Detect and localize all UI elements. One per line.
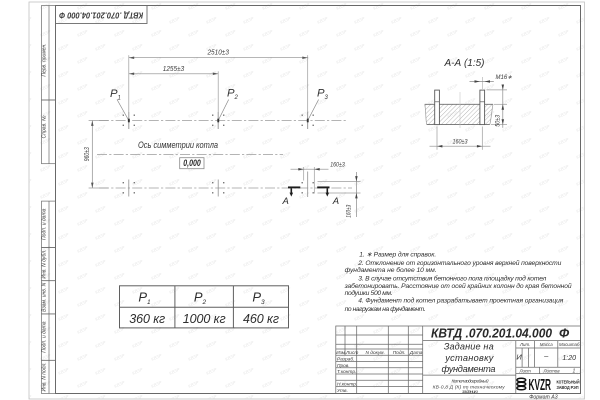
svg-text:Подп. и дата: Подп. и дата (41, 321, 47, 353)
svg-text:КВТД .070.201.04.000 Ф: КВТД .070.201.04.000 Ф (59, 10, 143, 20)
svg-text:N докум.: N докум. (366, 350, 385, 356)
svg-text:Н.контр.: Н.контр. (337, 382, 357, 388)
svg-text:Разраб.: Разраб. (337, 357, 354, 363)
svg-text:М16∗: М16∗ (496, 75, 513, 81)
svg-text:А: А (332, 196, 339, 207)
svg-text:Лист: Лист (345, 350, 358, 356)
svg-text:Подп. и дата: Подп. и дата (41, 208, 47, 240)
svg-text:360 кг: 360 кг (129, 312, 165, 326)
svg-text:Масса: Масса (540, 342, 554, 347)
svg-text:KVZR: KVZR (529, 377, 552, 394)
svg-text:Утв.: Утв. (337, 388, 348, 394)
svg-text:забетонировать. Расстояние от: забетонировать. Расстояние от осей крайн… (344, 282, 572, 290)
svg-text:1: 1 (573, 368, 576, 374)
svg-text:2. Отклонение от горизонтально: 2. Отклонение от горизонтального уровня … (357, 259, 561, 267)
svg-text:А: А (282, 196, 289, 207)
svg-text:установку: установку (444, 353, 494, 363)
svg-text:3. В случае отсутствия бетонно: 3. В случае отсутствия бетонного пола пл… (358, 275, 546, 283)
svg-text:Подп.: Подп. (393, 350, 406, 356)
svg-text:50±3: 50±3 (494, 114, 501, 126)
svg-text:–: – (543, 352, 549, 361)
svg-text:Лист: Лист (519, 368, 532, 373)
svg-text:КОТЕЛЬНЫЙ: КОТЕЛЬНЫЙ (557, 379, 580, 384)
svg-text:Инв. N дубл.: Инв. N дубл. (41, 250, 47, 279)
svg-text:подушки 500 мм.: подушки 500 мм. (345, 289, 393, 297)
svg-text:0,000: 0,000 (183, 158, 201, 169)
svg-text:160±3: 160±3 (345, 204, 352, 217)
svg-text:2510±3: 2510±3 (207, 50, 230, 57)
svg-text:Формат А3: Формат А3 (529, 394, 557, 400)
svg-text:Изм.: Изм. (336, 350, 346, 356)
svg-text:Дата: Дата (409, 350, 423, 356)
svg-text:фундамента не более 10 мм.: фундамента не более 10 мм. (345, 266, 437, 274)
svg-text:Перв. примен.: Перв. примен. (41, 43, 47, 76)
svg-text:Ось симметрии котла: Ось симметрии котла (138, 140, 218, 150)
svg-text:1:20: 1:20 (562, 355, 576, 362)
svg-text:Масштаб: Масштаб (559, 342, 580, 347)
svg-text:460 кг: 460 кг (243, 312, 279, 326)
svg-text:160±3: 160±3 (330, 162, 345, 169)
svg-text:И: И (516, 353, 522, 362)
svg-text:4. Фундамент под котел разраба: 4. Фундамент под котел разрабатывает про… (358, 297, 563, 305)
svg-text:Котел водогрейный: Котел водогрейный (452, 377, 489, 384)
svg-text:Ф: Ф (559, 325, 570, 340)
svg-text:ЗАВОД РЭП: ЗАВОД РЭП (557, 385, 579, 390)
svg-text:КВТД .070.201.04.000: КВТД .070.201.04.000 (431, 325, 553, 340)
svg-text:Т.контр.: Т.контр. (337, 369, 356, 375)
svg-text:1. ∗ Размер для справок.: 1. ∗ Размер для справок. (359, 251, 436, 259)
svg-text:Задание на: Задание на (444, 341, 494, 351)
svg-text:по нагрузкам на фундамент.: по нагрузкам на фундамент. (345, 305, 426, 313)
svg-text:Взам. инв. N: Взам. инв. N (41, 282, 47, 312)
svg-text:1255±3: 1255±3 (163, 66, 185, 73)
svg-text:Инв. N подл.: Инв. N подл. (41, 362, 47, 391)
svg-text:Листов: Листов (543, 368, 561, 373)
svg-text:160±3: 160±3 (453, 138, 468, 145)
svg-text:960±3: 960±3 (84, 147, 91, 161)
svg-text:1000 кг: 1000 кг (183, 312, 226, 326)
svg-text:Пров.: Пров. (337, 363, 350, 369)
svg-text:заданию: заданию (461, 389, 478, 395)
svg-text:фундамента: фундамента (442, 364, 496, 374)
svg-text:Лит.: Лит. (519, 342, 530, 347)
svg-text:Справ. №: Справ. № (41, 115, 47, 138)
svg-text:А-А (1:5): А-А (1:5) (444, 58, 485, 69)
